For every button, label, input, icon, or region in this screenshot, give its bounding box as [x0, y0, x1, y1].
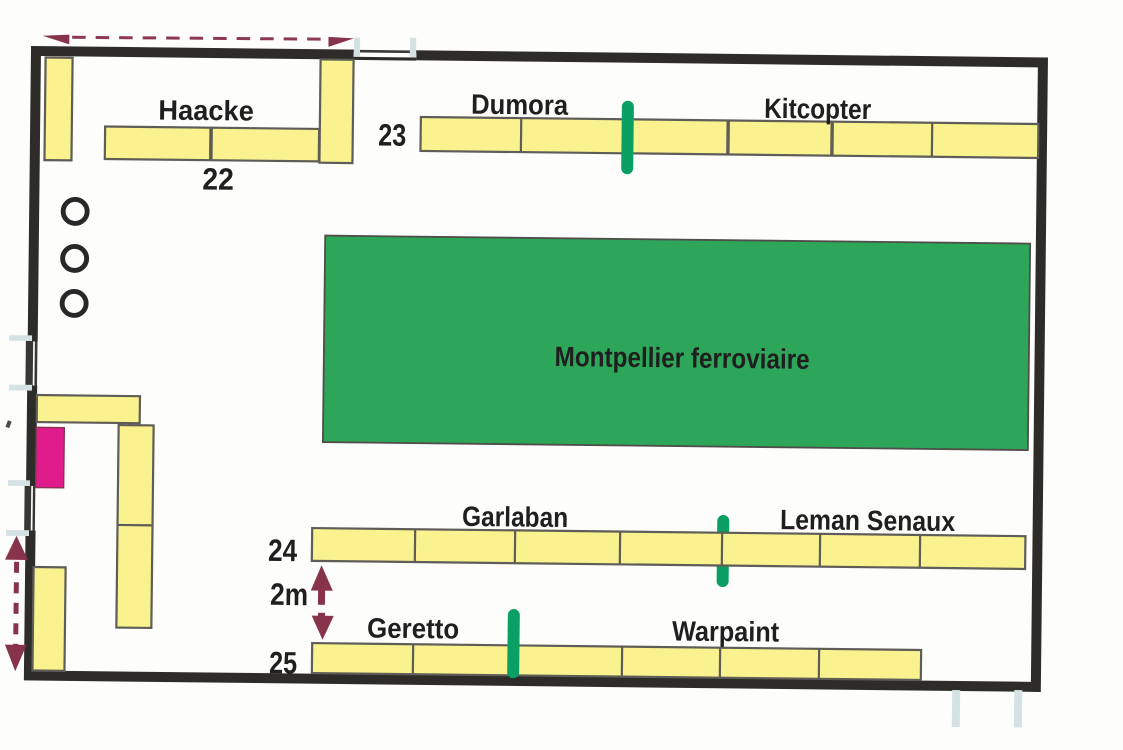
svg-text:Haacke: Haacke — [158, 94, 254, 126]
svg-text:2m: 2m — [270, 577, 308, 612]
svg-text:25: 25 — [269, 645, 297, 680]
svg-text:Warpaint: Warpaint — [672, 615, 779, 647]
svg-text:Montpellier ferroviaire: Montpellier ferroviaire — [554, 341, 809, 375]
svg-text:Leman Senaux: Leman Senaux — [780, 504, 956, 537]
svg-text:23: 23 — [378, 117, 406, 152]
svg-text:Garlaban: Garlaban — [462, 501, 568, 533]
svg-text:Kitcopter: Kitcopter — [764, 93, 871, 125]
svg-text:24: 24 — [268, 533, 298, 568]
svg-text:Geretto: Geretto — [367, 612, 459, 644]
svg-text:22: 22 — [202, 161, 234, 196]
svg-text:Dumora: Dumora — [471, 89, 569, 121]
